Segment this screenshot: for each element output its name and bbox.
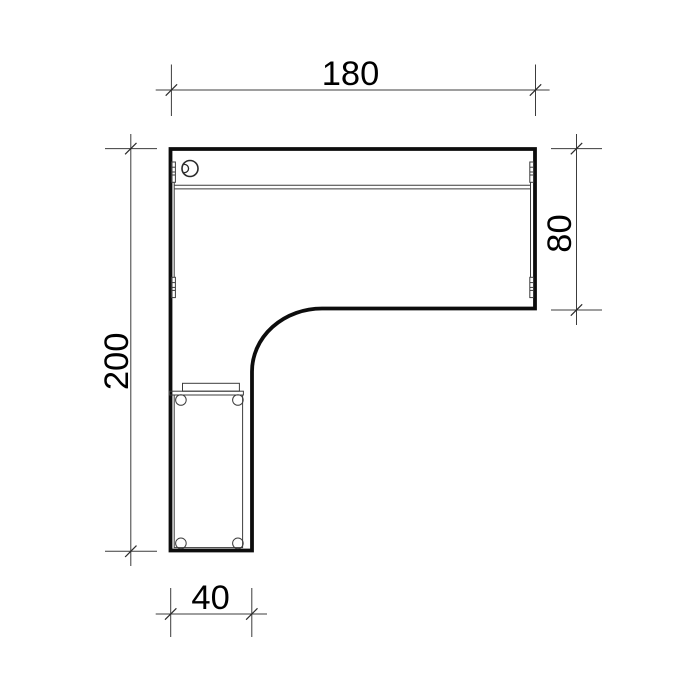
svg-text:40: 40	[191, 579, 229, 617]
svg-text:180: 180	[322, 55, 380, 93]
svg-text:200: 200	[98, 333, 136, 391]
svg-text:80: 80	[541, 214, 579, 252]
